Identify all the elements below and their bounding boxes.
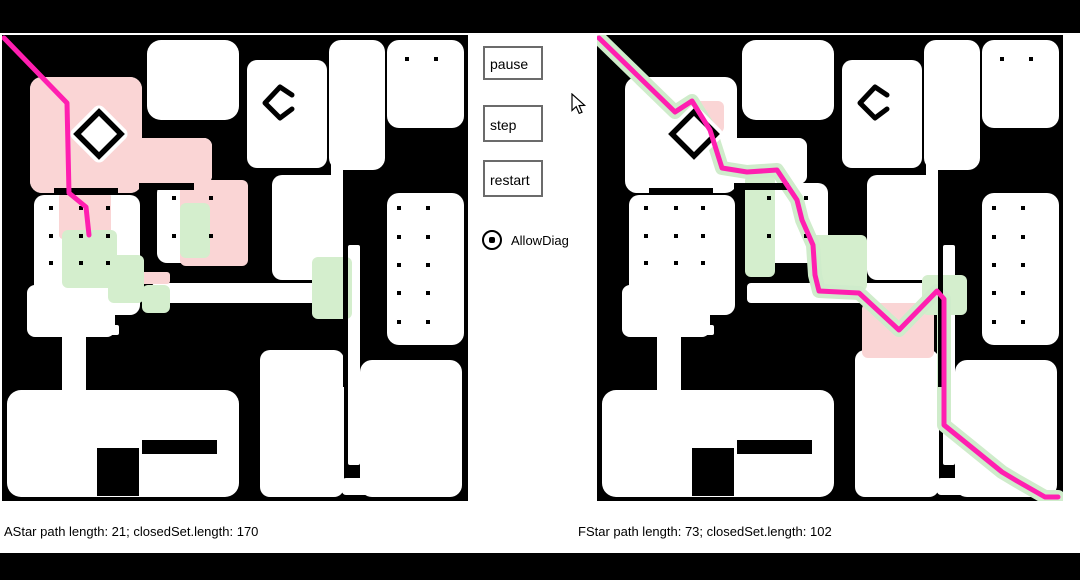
- allow-diag-option: AllowDiag: [482, 230, 569, 250]
- maze-dot: [992, 291, 996, 295]
- maze-dot: [701, 206, 705, 210]
- radio-checked-dot: [489, 237, 495, 243]
- pause-button[interactable]: pause: [483, 46, 543, 80]
- maze-room: [692, 325, 714, 335]
- maze-dot: [172, 196, 176, 200]
- astar-status-text: AStar path length: 21; closedSet.length:…: [4, 524, 258, 539]
- maze-dot: [49, 206, 53, 210]
- maze-dot: [804, 196, 808, 200]
- fstar-maze-canvas: [597, 35, 1063, 501]
- maze-dot: [674, 206, 678, 210]
- closed-set-green-region: [108, 255, 144, 303]
- maze-dot: [426, 235, 430, 239]
- maze-room: [62, 330, 86, 395]
- maze-dot: [49, 261, 53, 265]
- maze-room: [360, 360, 462, 497]
- fstar-status-text: FStar path length: 73; closedSet.length:…: [578, 524, 832, 539]
- maze-dot: [644, 234, 648, 238]
- maze-dot: [992, 320, 996, 324]
- maze-dot: [106, 234, 110, 238]
- letterbox-bottom: [0, 553, 1080, 580]
- maze-dot: [767, 234, 771, 238]
- maze-dot: [79, 234, 83, 238]
- maze-dot: [426, 263, 430, 267]
- maze-wall-bar: [54, 188, 118, 195]
- maze-dot: [426, 291, 430, 295]
- app-window: { "controls": { "pause": "pause", "step"…: [0, 0, 1080, 580]
- maze-dot: [172, 234, 176, 238]
- maze-dot: [992, 235, 996, 239]
- maze-dot: [106, 261, 110, 265]
- astar-maze-panel: [2, 35, 468, 501]
- maze-dot: [79, 261, 83, 265]
- closed-set-green-region: [745, 175, 775, 277]
- mouse-cursor-icon: [571, 93, 587, 115]
- maze-room: [855, 350, 939, 497]
- maze-dot: [674, 261, 678, 265]
- maze-room: [342, 478, 402, 495]
- maze-wall-bar: [97, 448, 139, 496]
- maze-dot: [209, 196, 213, 200]
- closed-set-green-region: [180, 203, 210, 258]
- maze-dot: [1000, 57, 1004, 61]
- maze-dot: [209, 234, 213, 238]
- closed-set-pink-region: [140, 272, 170, 284]
- fstar-maze-panel: [597, 35, 1063, 501]
- maze-dot: [397, 206, 401, 210]
- maze-dot: [106, 206, 110, 210]
- maze-dot: [397, 291, 401, 295]
- maze-wall-bar: [692, 448, 734, 496]
- maze-wall-bar: [734, 183, 789, 190]
- maze-dot: [644, 206, 648, 210]
- allow-diag-label: AllowDiag: [511, 233, 569, 248]
- maze-dot: [397, 263, 401, 267]
- maze-room: [982, 40, 1059, 128]
- maze-dot: [674, 234, 678, 238]
- maze-wall-bar: [139, 183, 194, 190]
- maze-dot: [397, 235, 401, 239]
- maze-dot: [1029, 57, 1033, 61]
- maze-dot: [397, 320, 401, 324]
- letterbox-top: [0, 0, 1080, 33]
- maze-room: [657, 330, 681, 395]
- maze-dot: [1021, 235, 1025, 239]
- maze-room: [387, 40, 464, 128]
- maze-room: [937, 478, 997, 495]
- maze-room: [926, 145, 938, 295]
- maze-dot: [426, 206, 430, 210]
- closed-set-green-region: [142, 285, 170, 313]
- maze-dot: [644, 261, 648, 265]
- maze-wall-bar: [142, 440, 217, 454]
- maze-dot: [767, 196, 771, 200]
- maze-dot: [701, 234, 705, 238]
- maze-room: [742, 40, 834, 120]
- maze-wall-bar: [649, 188, 713, 195]
- maze-dot: [1021, 291, 1025, 295]
- astar-maze-canvas: [2, 35, 468, 501]
- maze-dot: [701, 261, 705, 265]
- maze-dot: [426, 320, 430, 324]
- maze-wall-bar: [343, 245, 348, 387]
- maze-dot: [49, 234, 53, 238]
- maze-dot: [1021, 263, 1025, 267]
- closed-set-pink-region: [30, 138, 212, 184]
- maze-dot: [405, 57, 409, 61]
- restart-button[interactable]: restart: [483, 160, 543, 197]
- maze-room: [97, 325, 119, 335]
- maze-wall-bar: [737, 440, 812, 454]
- maze-room: [260, 350, 344, 497]
- maze-dot: [992, 206, 996, 210]
- maze-dot: [434, 57, 438, 61]
- maze-room: [147, 40, 239, 120]
- maze-dot: [1021, 206, 1025, 210]
- allow-diag-radio[interactable]: [482, 230, 502, 250]
- step-button[interactable]: step: [483, 105, 543, 142]
- maze-dot: [1021, 320, 1025, 324]
- maze-dot: [992, 263, 996, 267]
